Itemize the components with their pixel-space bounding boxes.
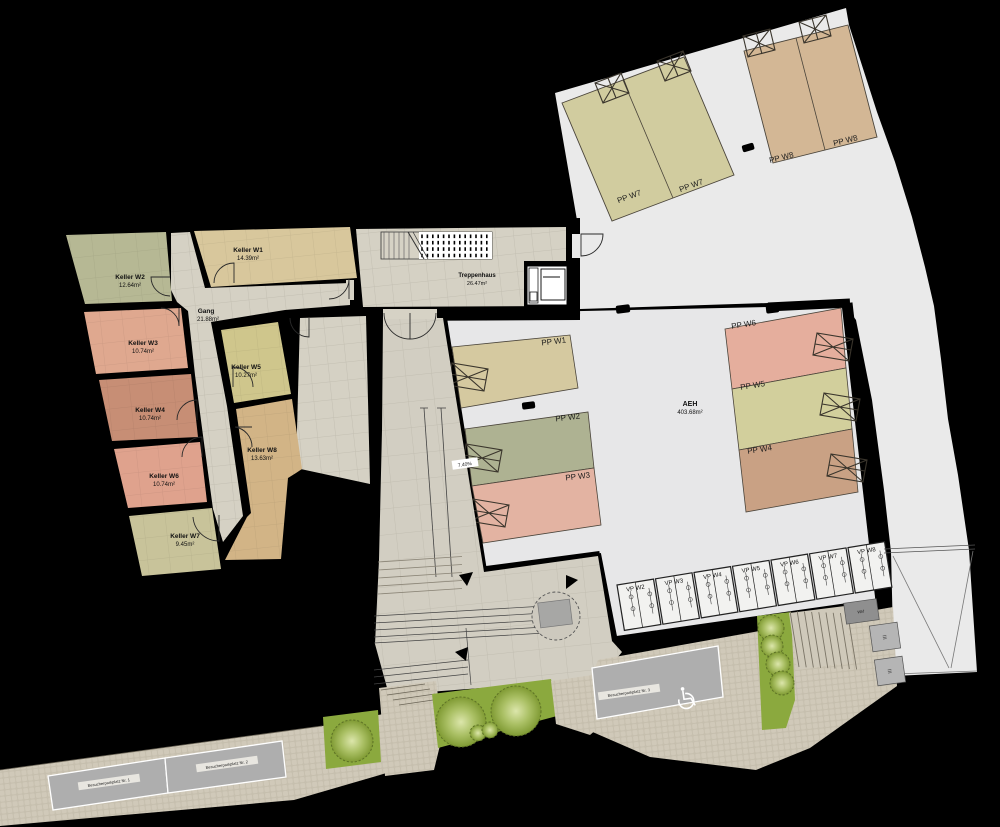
svg-text:AEH: AEH — [683, 401, 698, 408]
svg-text:14.39m²: 14.39m² — [237, 256, 259, 262]
svg-text:9.45m²: 9.45m² — [176, 542, 195, 548]
svg-text:Keller W4: Keller W4 — [135, 407, 165, 414]
svg-text:Keller W8: Keller W8 — [247, 447, 277, 454]
svg-text:Gang: Gang — [198, 308, 215, 315]
svg-text:26.47m²: 26.47m² — [467, 281, 487, 287]
svg-text:Keller W7: Keller W7 — [170, 533, 200, 540]
svg-text:10.74m²: 10.74m² — [139, 416, 161, 422]
svg-text:Treppenhaus: Treppenhaus — [458, 273, 496, 279]
svg-text:403.68m²: 403.68m² — [677, 410, 702, 416]
svg-text:10.74m²: 10.74m² — [132, 349, 154, 355]
svg-text:Keller W3: Keller W3 — [128, 340, 158, 347]
svg-text:Keller W6: Keller W6 — [149, 473, 179, 480]
svg-text:10.74m²: 10.74m² — [153, 482, 175, 488]
svg-text:10.27m²: 10.27m² — [235, 373, 257, 379]
svg-text:12.64m²: 12.64m² — [119, 283, 141, 289]
svg-text:Keller W2: Keller W2 — [115, 274, 145, 281]
svg-text:21.88m²: 21.88m² — [197, 317, 219, 323]
svg-text:13.63m²: 13.63m² — [251, 456, 273, 462]
svg-text:Keller W1: Keller W1 — [233, 247, 263, 254]
